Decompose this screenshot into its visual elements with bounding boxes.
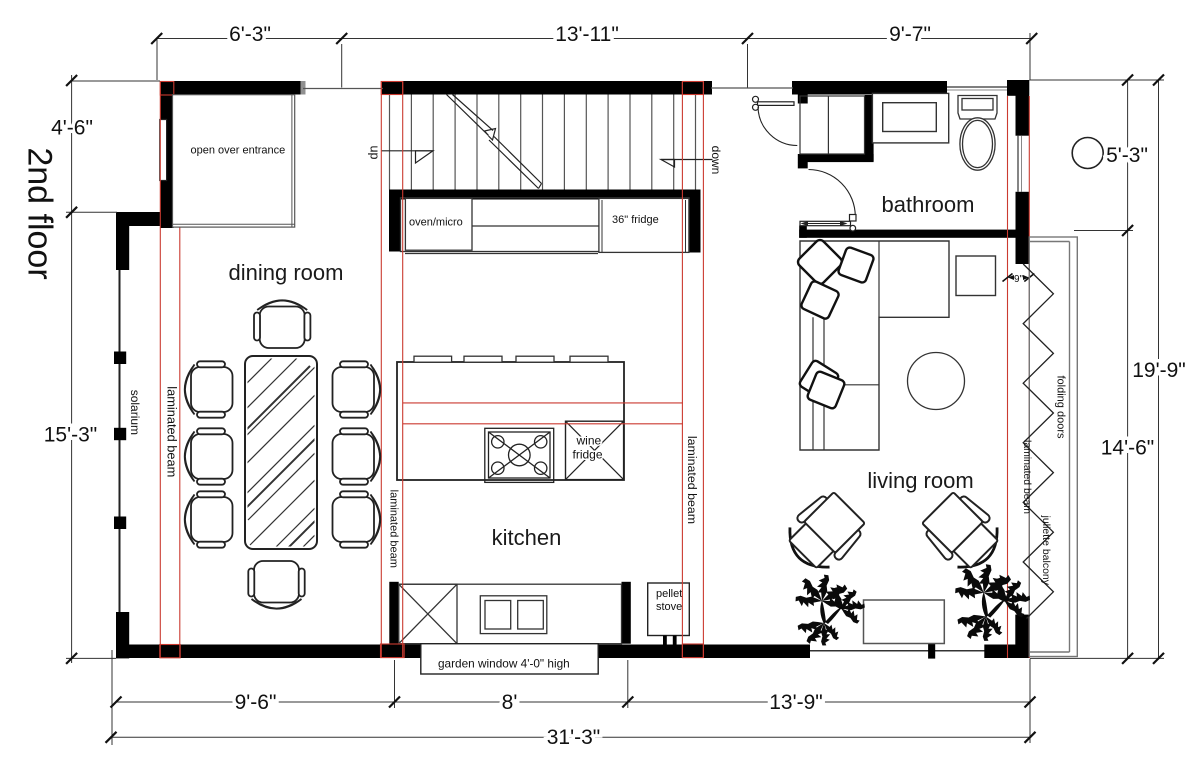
svg-text:oven/micro: oven/micro [409, 217, 463, 229]
svg-text:15'-3": 15'-3" [44, 424, 98, 447]
svg-text:8': 8' [502, 691, 518, 714]
svg-text:2nd floor: 2nd floor [21, 147, 59, 279]
svg-text:up: up [367, 146, 381, 160]
svg-text:garden window 4'-0" high: garden window 4'-0" high [438, 657, 570, 671]
svg-text:folding doors: folding doors [1054, 376, 1066, 439]
svg-text:juliette balcony: juliette balcony [1040, 515, 1052, 586]
svg-text:solarium: solarium [128, 390, 142, 435]
svg-text:wine: wine [576, 434, 602, 448]
svg-text:bathroom: bathroom [882, 192, 975, 217]
svg-text:19'-9": 19'-9" [1132, 359, 1186, 382]
svg-text:9": 9" [1014, 274, 1024, 285]
svg-text:kitchen: kitchen [492, 525, 562, 550]
svg-text:14'-6": 14'-6" [1101, 437, 1155, 460]
svg-text:13'-9": 13'-9" [769, 691, 823, 714]
svg-text:31'-3": 31'-3" [547, 726, 601, 749]
svg-text:pellet: pellet [656, 588, 682, 600]
svg-text:9'-7": 9'-7" [889, 23, 931, 46]
svg-text:laminated beam: laminated beam [388, 490, 400, 568]
svg-text:13'-11": 13'-11" [555, 23, 619, 46]
svg-text:stove: stove [656, 601, 682, 613]
svg-text:5'-3": 5'-3" [1106, 144, 1148, 167]
svg-text:open over entrance: open over entrance [191, 145, 286, 157]
svg-text:laminated beam: laminated beam [685, 436, 699, 524]
svg-text:36" fridge: 36" fridge [612, 214, 659, 226]
svg-text:laminated beam: laminated beam [1021, 440, 1032, 514]
svg-text:9'-6": 9'-6" [235, 691, 277, 714]
svg-text:living room: living room [867, 468, 973, 493]
svg-text:4'-6": 4'-6" [51, 117, 93, 140]
svg-text:dining room: dining room [229, 260, 344, 285]
svg-text:laminated beam: laminated beam [164, 386, 179, 477]
svg-text:6'-3": 6'-3" [229, 23, 271, 46]
svg-text:fridge: fridge [573, 448, 603, 462]
svg-text:down: down [709, 146, 723, 175]
